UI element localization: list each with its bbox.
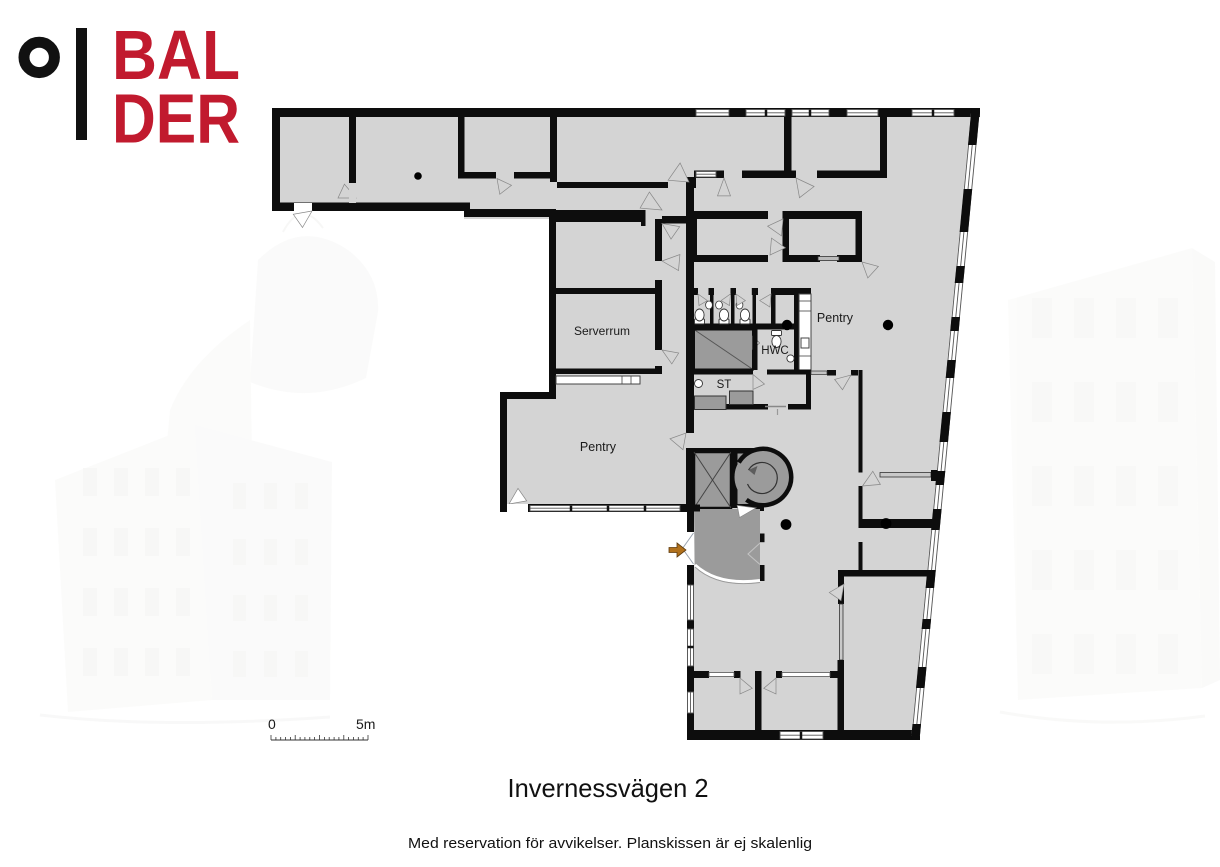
svg-text:DER: DER [112,80,240,158]
svg-text:HWC: HWC [761,345,788,357]
svg-text:Serverrum: Serverrum [574,324,630,338]
svg-text:0: 0 [268,716,276,732]
svg-text:Med reservation för avvikelser: Med reservation för avvikelser. Planskis… [408,835,812,852]
svg-text:5m: 5m [356,716,375,732]
svg-text:Pentry: Pentry [817,311,854,325]
svg-text:ST: ST [717,379,732,391]
svg-text:Invernessvägen 2: Invernessvägen 2 [508,773,709,803]
svg-text:Pentry: Pentry [580,440,617,454]
